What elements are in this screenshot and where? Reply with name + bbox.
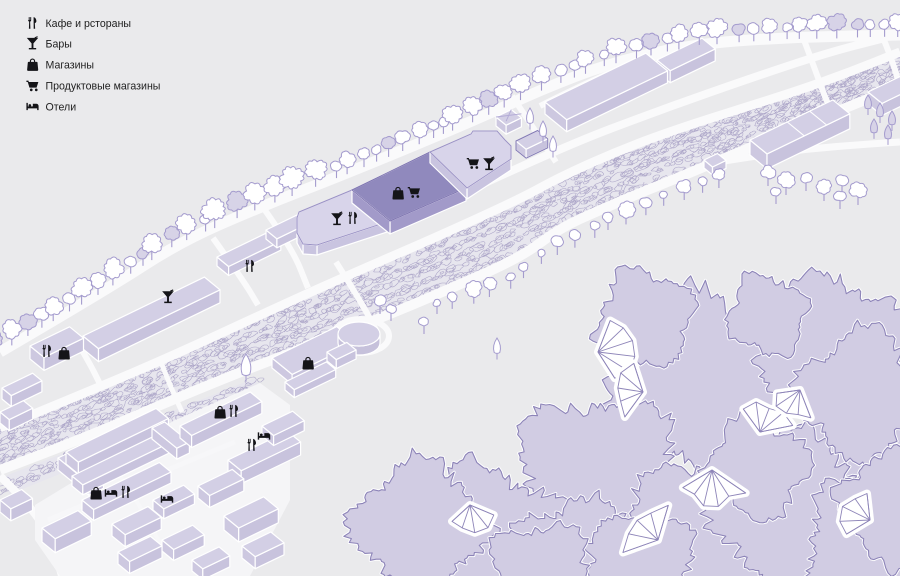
svg-text:Бары: Бары — [46, 38, 72, 50]
svg-text:Кафе и рстораны: Кафе и рстораны — [46, 18, 132, 30]
svg-text:Отели: Отели — [46, 101, 77, 113]
svg-text:Магазины: Магазины — [46, 59, 94, 71]
svg-text:Продуктовые магазины: Продуктовые магазины — [46, 80, 161, 92]
